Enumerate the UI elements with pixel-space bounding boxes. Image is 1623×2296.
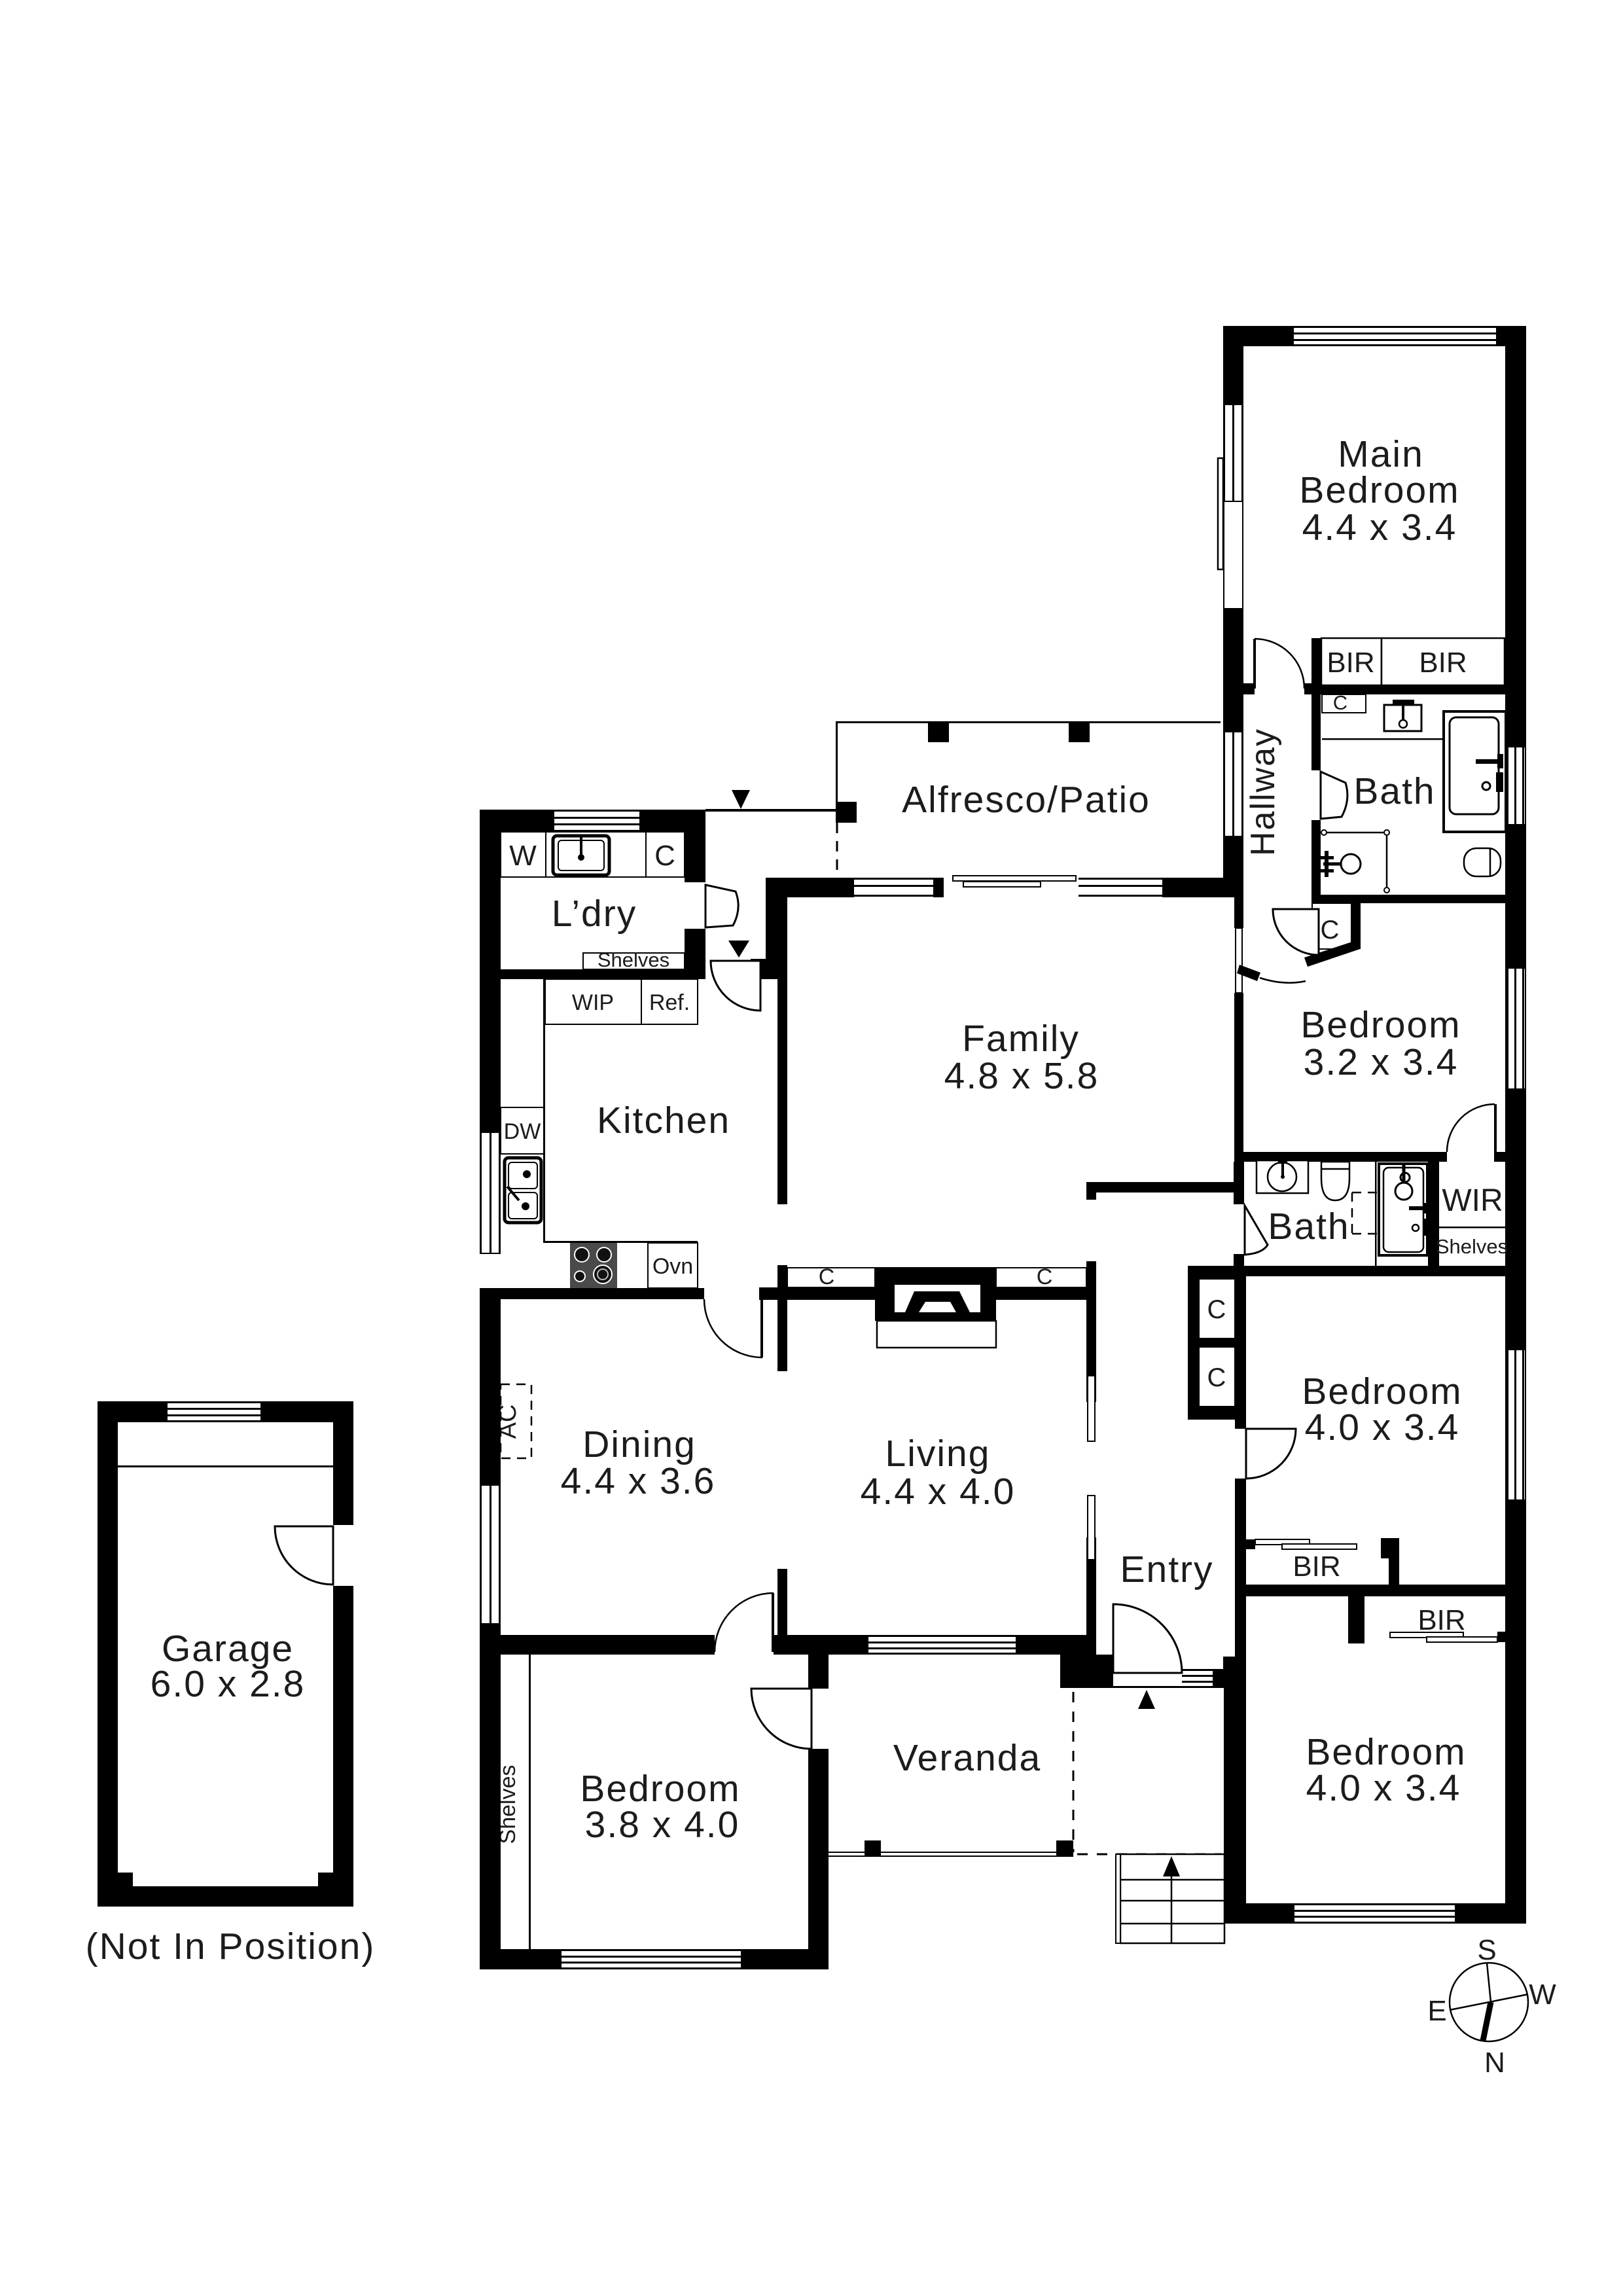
svg-text:W: W	[1529, 1979, 1556, 2011]
svg-text:4.4 x 4.0: 4.4 x 4.0	[861, 1471, 1016, 1513]
svg-text:Veranda: Veranda	[893, 1737, 1041, 1779]
svg-text:Family: Family	[962, 1018, 1080, 1060]
svg-text:Bath: Bath	[1268, 1206, 1349, 1247]
svg-text:4.0 x 3.4: 4.0 x 3.4	[1305, 1407, 1460, 1448]
svg-text:C: C	[654, 840, 675, 872]
svg-text:L’dry: L’dry	[552, 893, 637, 935]
svg-text:WIP: WIP	[572, 990, 614, 1015]
svg-text:Ovn: Ovn	[652, 1254, 693, 1279]
svg-text:Bath: Bath	[1353, 770, 1435, 812]
svg-text:Bedroom: Bedroom	[1300, 1004, 1461, 1046]
svg-text:N: N	[1484, 2047, 1505, 2079]
svg-text:Entry: Entry	[1120, 1549, 1213, 1590]
svg-text:4.4 x 3.4: 4.4 x 3.4	[1302, 507, 1457, 548]
svg-text:Shelves: Shelves	[597, 948, 669, 971]
svg-text:C: C	[1321, 916, 1340, 944]
svg-text:3.8 x 4.0: 3.8 x 4.0	[585, 1804, 740, 1846]
svg-text:Shelves: Shelves	[1436, 1235, 1508, 1258]
svg-text:C: C	[1207, 1295, 1226, 1324]
svg-text:Dining: Dining	[582, 1424, 696, 1465]
svg-text:Alfresco/Patio: Alfresco/Patio	[902, 779, 1150, 821]
svg-text:(Not In Position): (Not In Position)	[86, 1926, 376, 1967]
svg-text:4.4 x 3.6: 4.4 x 3.6	[561, 1460, 716, 1502]
svg-text:Hallway: Hallway	[1244, 728, 1282, 856]
svg-text:W: W	[509, 840, 537, 872]
svg-text:Bedroom: Bedroom	[1299, 469, 1459, 511]
svg-text:BIR: BIR	[1327, 647, 1374, 679]
svg-text:BIR: BIR	[1418, 1604, 1465, 1636]
svg-text:C: C	[1333, 691, 1347, 714]
svg-text:S: S	[1477, 1934, 1496, 1966]
svg-text:6.0 x 2.8: 6.0 x 2.8	[151, 1663, 306, 1705]
svg-text:C: C	[1207, 1363, 1226, 1392]
svg-text:3.2 x 3.4: 3.2 x 3.4	[1304, 1041, 1459, 1083]
svg-text:DW: DW	[504, 1119, 541, 1144]
svg-text:Living: Living	[885, 1433, 991, 1475]
svg-text:E: E	[1427, 1995, 1446, 2027]
svg-text:4.0 x 3.4: 4.0 x 3.4	[1306, 1767, 1461, 1809]
svg-text:BIR: BIR	[1419, 647, 1467, 679]
svg-text:BIR: BIR	[1293, 1551, 1340, 1583]
svg-text:WIR: WIR	[1442, 1183, 1503, 1218]
svg-text:C: C	[1037, 1265, 1053, 1289]
svg-text:Kitchen: Kitchen	[597, 1100, 730, 1141]
svg-text:C: C	[819, 1265, 835, 1289]
svg-text:Ref.: Ref.	[649, 990, 690, 1015]
svg-text:4.8 x 5.8: 4.8 x 5.8	[944, 1055, 1099, 1097]
